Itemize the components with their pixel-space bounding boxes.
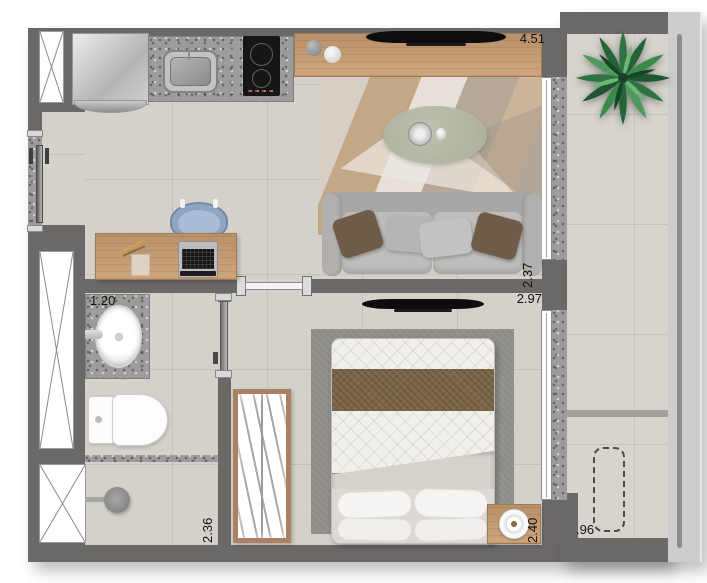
shaft-x-icon [40,32,63,102]
dim-label-bath-depth: 2.36 [201,499,215,543]
toilet-bowl [112,394,168,446]
window-stub-top [542,33,567,77]
balcony-bottom-wall [567,538,668,562]
kitchen-sink-basin [170,57,211,86]
palm-leaves [576,31,670,125]
shaft-middle [39,251,74,449]
desk-chair-arm-right [213,199,218,208]
bed [331,338,495,544]
shower-head [104,487,130,513]
coffee-table-decor-cup [436,128,446,140]
bathroom-sink-drain [115,333,123,341]
living-window-sill [552,77,567,260]
entry-door-handle-in [45,148,49,164]
dim-label-balcony-width: .96 [576,523,610,537]
palm-plant [573,28,673,128]
bathroom-wall [218,372,231,545]
desk-notepad [131,254,150,276]
bedroom-tv-shadow [394,309,452,312]
toilet-flush-button [95,416,102,423]
laptop-front-bar [180,271,216,276]
bedroom-window-sill [552,310,567,500]
living-window [541,77,552,260]
desk-chair-arm-left [180,199,185,208]
balcony-divider [567,410,668,417]
shaft-top [39,31,64,103]
refrigerator [72,33,149,105]
entry-door-leaf [36,145,43,223]
bed-pillow-2 [414,488,489,520]
bathroom-faucet [85,330,103,339]
cooktop-burner-1 [250,43,273,66]
bathroom-door-leaf [220,301,228,371]
decor-sphere-dark [306,40,322,56]
dim-label-bath-width: 1.20 [90,294,130,308]
bathroom-door-jamb-bottom [215,370,232,378]
window-stub-mid [542,258,567,310]
balcony-railing [668,12,702,562]
shower-divider-strip [85,455,218,462]
bathroom-door-handle [213,352,218,364]
cooktop-controls [248,90,275,92]
entry-jamb-bottom [27,225,43,232]
dim-label-bedroom-depth: 2.40 [526,499,540,543]
floorplan: 4.51 2.37 2.97 2.40 1.20 2.36 .96 [0,0,707,583]
ac-unit-dashed-outline [593,447,625,532]
sliding-door-post-right [302,276,312,296]
divider-wall-right [303,279,542,293]
bed-pillow-4 [414,517,489,543]
kitchen-faucet-handle [183,44,195,47]
bedroom-tv [362,299,484,309]
decor-sphere-light [324,46,341,63]
living-tv-stand [406,43,466,46]
wardrobe-rack [233,389,291,543]
laptop-keyboard [182,249,214,269]
bathroom-door-jamb-top [215,293,232,301]
bed-runner [332,369,494,411]
dim-label-bedroom-width: 2.97 [500,292,542,306]
coffee-table [383,106,487,164]
sofa-pillow-gray-2 [418,217,474,259]
shaft-bottom [39,464,86,543]
entry-jamb-top [27,130,43,137]
dim-label-living-width: 4.51 [503,32,545,46]
entry-floor [42,112,85,225]
sofa [322,192,542,278]
divider-wall-left [85,279,237,293]
balcony-railing-rail [677,34,682,548]
entry-door-handle-out [29,148,33,164]
sliding-door-panel [245,282,303,290]
bed-pillow-3 [337,517,412,541]
shaft-x-icon [40,252,73,448]
kitchen-faucet [188,40,190,60]
dim-label-living-depth: 2.37 [521,244,535,288]
window-stub-bottom [542,498,567,545]
bedroom-window [541,310,552,500]
living-tv [366,31,506,43]
coffee-table-decor-plate [408,122,432,146]
shaft-x-icon [40,465,85,542]
bed-pillow-1 [337,490,413,520]
cooktop-burner-2 [252,69,271,88]
